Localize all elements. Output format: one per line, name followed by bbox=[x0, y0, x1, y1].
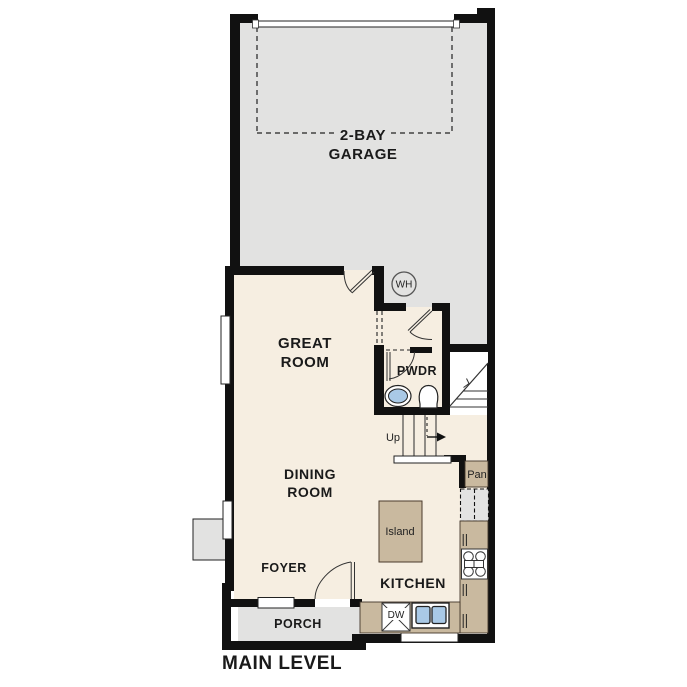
wall bbox=[222, 583, 231, 650]
garage-door bbox=[253, 20, 460, 28]
refrigerator-space bbox=[461, 489, 489, 521]
wall bbox=[374, 407, 450, 415]
window bbox=[258, 598, 294, 609]
kitchen-sink-icon bbox=[412, 603, 449, 628]
wall bbox=[410, 347, 432, 353]
porch-label: PORCH bbox=[274, 617, 322, 631]
wall bbox=[442, 303, 450, 415]
garage-label-line2: GARAGE bbox=[329, 146, 398, 163]
toilet-icon bbox=[419, 386, 438, 409]
range-icon bbox=[462, 549, 488, 579]
window bbox=[221, 316, 230, 384]
kitchen-label: KITCHEN bbox=[380, 575, 446, 591]
dining-room-label-line1: DINING bbox=[284, 466, 336, 482]
floorplan-page: 2-BAY GARAGE GREAT ROOM DINING ROOM KITC… bbox=[0, 0, 687, 687]
dining-room-label-line2: ROOM bbox=[287, 484, 333, 500]
water-heater-label: WH bbox=[396, 280, 413, 291]
floorplan-drawing: 2-BAY GARAGE GREAT ROOM DINING ROOM KITC… bbox=[0, 0, 687, 687]
window bbox=[223, 501, 232, 539]
great-room-label-line1: GREAT bbox=[278, 335, 332, 352]
wall bbox=[374, 303, 406, 311]
foyer-label: FOYER bbox=[261, 561, 307, 575]
stair-landing-edge bbox=[394, 456, 451, 463]
island-label: Island bbox=[385, 526, 414, 538]
wall bbox=[442, 344, 495, 352]
pantry-label: Pan bbox=[467, 469, 487, 481]
stairs-up-label: Up bbox=[386, 432, 400, 444]
pedestal-sink-basin bbox=[389, 389, 408, 403]
garage-label-line1: 2-BAY bbox=[340, 127, 386, 144]
wall bbox=[230, 14, 240, 272]
wall bbox=[225, 266, 234, 591]
dishwasher-label: DW bbox=[388, 610, 405, 621]
wall bbox=[234, 266, 344, 275]
great-room-label-line2: ROOM bbox=[281, 354, 330, 371]
wall bbox=[374, 345, 384, 415]
wall bbox=[222, 641, 366, 650]
level-title: MAIN LEVEL bbox=[222, 653, 342, 674]
powder-room-label: PWDR bbox=[397, 364, 437, 378]
